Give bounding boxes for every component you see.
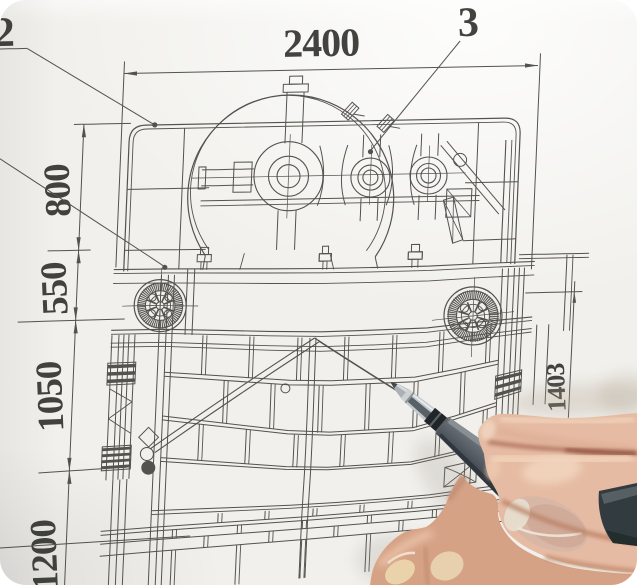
svg-text:800: 800 bbox=[36, 163, 79, 218]
svg-text:1200: 1200 bbox=[23, 519, 67, 585]
svg-text:1050: 1050 bbox=[29, 360, 73, 432]
svg-text:3: 3 bbox=[458, 0, 479, 46]
svg-text:550: 550 bbox=[33, 261, 76, 316]
svg-text:2400: 2400 bbox=[283, 19, 360, 65]
